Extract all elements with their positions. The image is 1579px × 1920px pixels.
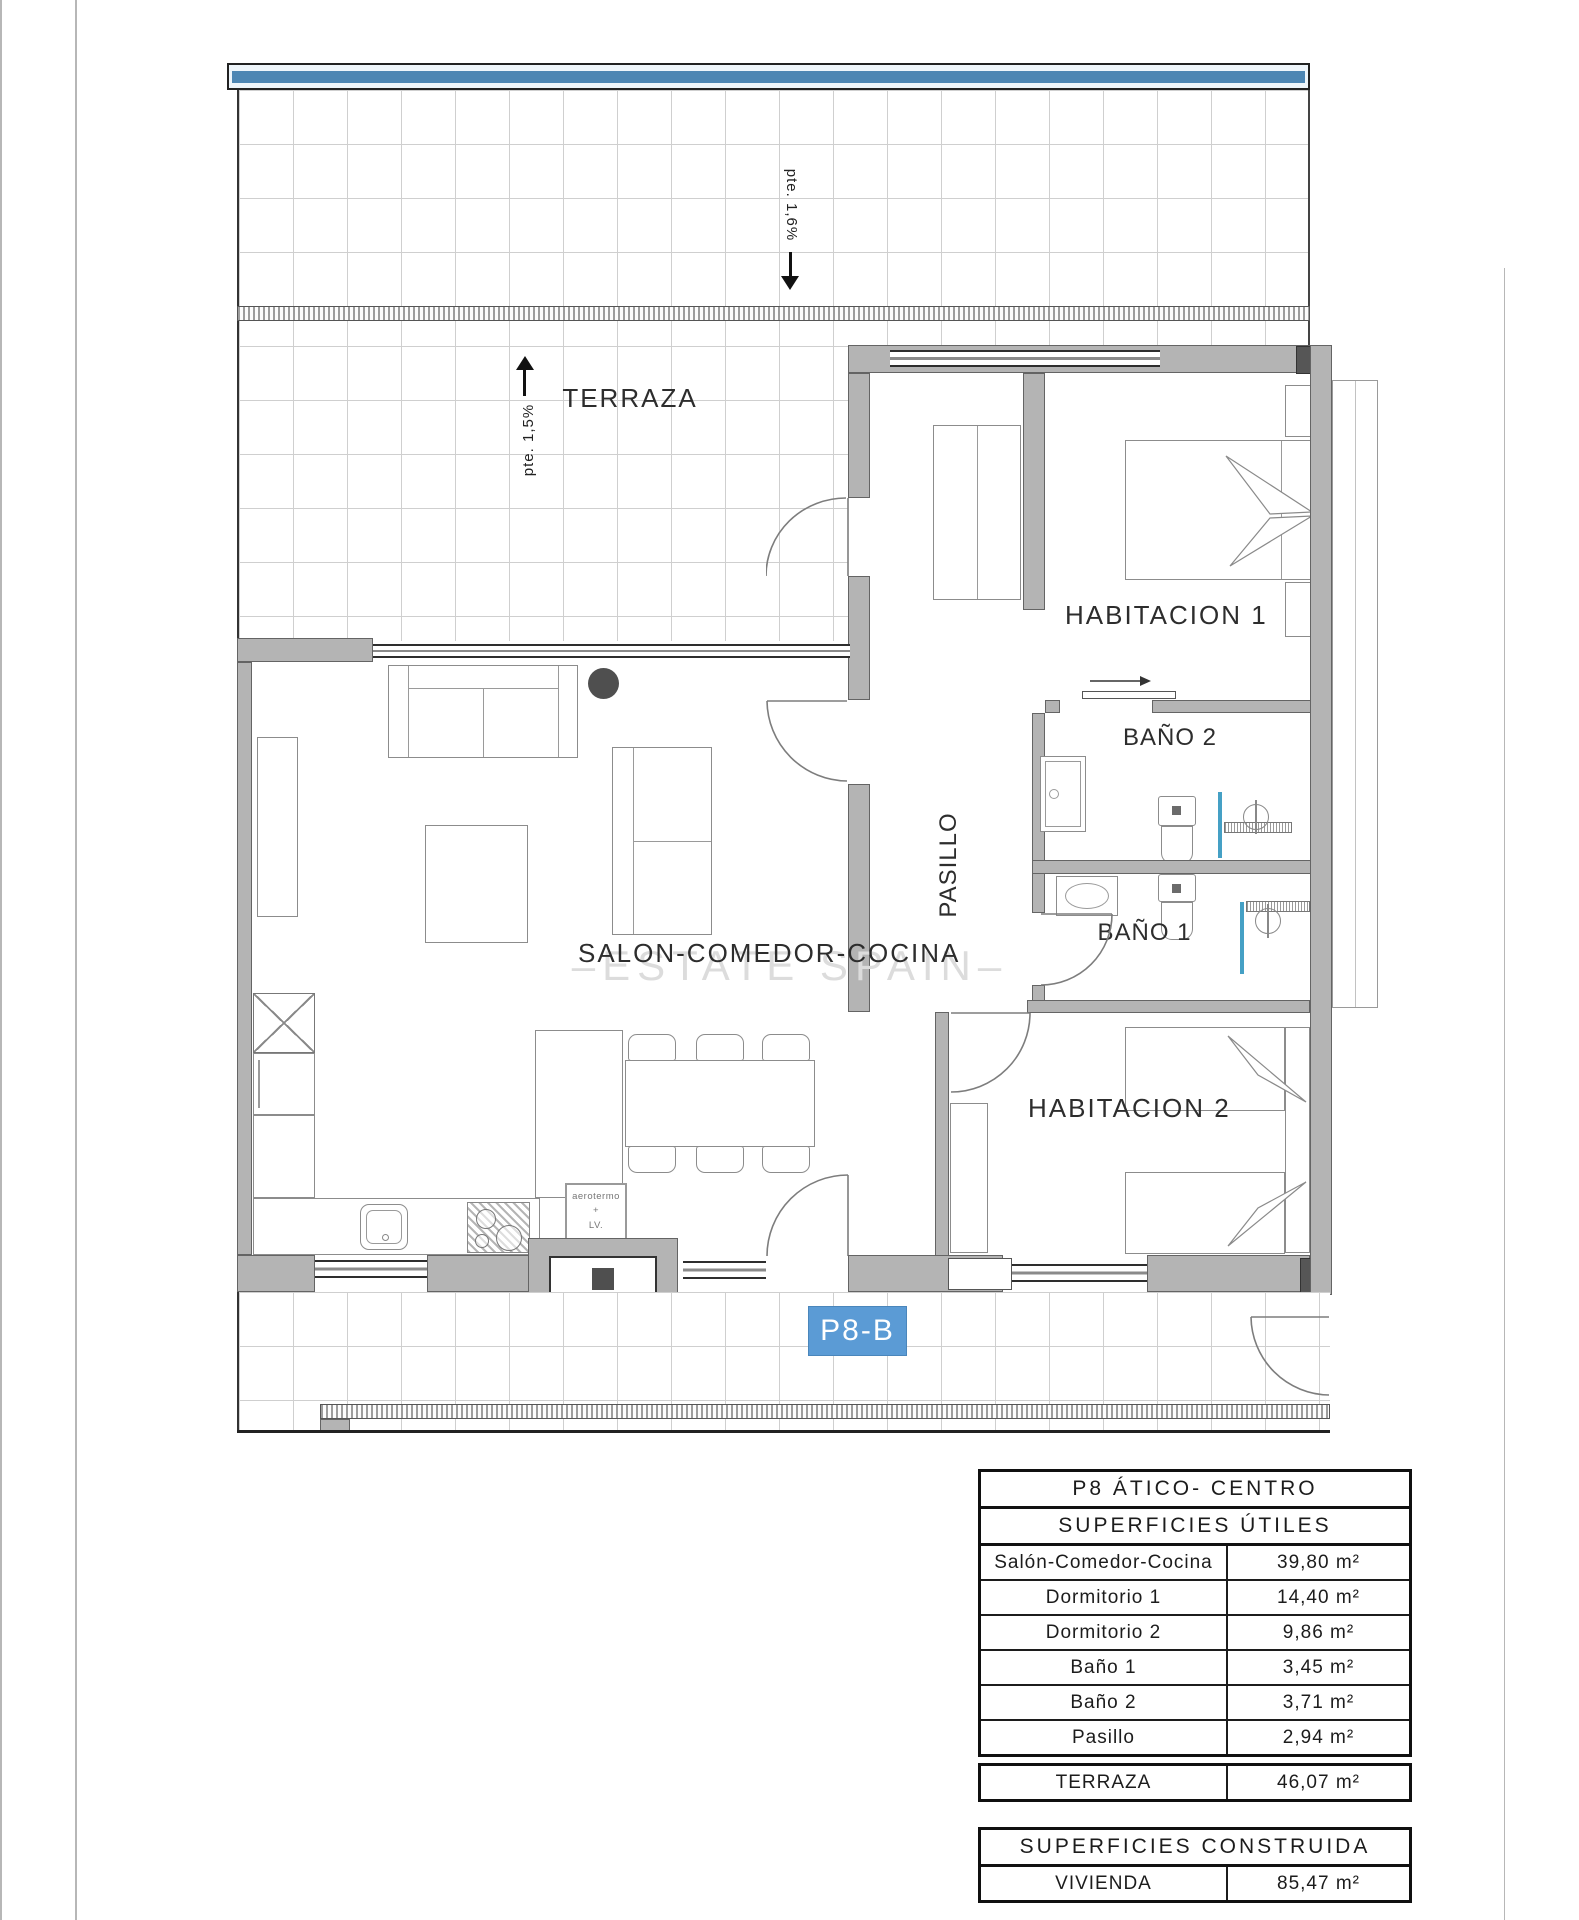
faucet-bano2-stem: [1255, 800, 1257, 834]
slope-annotation-top: pte. 1,6%: [782, 160, 800, 250]
table-title: SUPERFICIES CONSTRUIDA: [981, 1830, 1409, 1864]
aerotermo-unit: aerotermo + LV.: [565, 1183, 627, 1240]
terrace-drain-strip: [237, 306, 1310, 321]
bano2-shower-screen: [1218, 792, 1222, 858]
terraza-table: TERRAZA 46,07 m²: [978, 1763, 1412, 1802]
habitacion1-label: HABITACION 1: [1065, 600, 1255, 631]
page-edge-line: [0, 0, 2, 1920]
row-value: 3,71 m²: [1228, 1686, 1409, 1719]
east-gallery-strip: [1332, 380, 1378, 1008]
aerotermo-text-3: LV.: [589, 1219, 603, 1233]
plant-circle: [588, 668, 619, 699]
bano2-sliding-door-leaf: [1082, 691, 1176, 699]
south-window-2: [683, 1261, 766, 1279]
south-window-3: [1003, 1264, 1147, 1282]
table-row: Baño 1 3,45 m²: [981, 1649, 1409, 1684]
coffee-table: [425, 825, 528, 943]
habitacion2-door-arc: [950, 1012, 1032, 1094]
row-label: Pasillo: [981, 1721, 1228, 1754]
wall-habitacion2-top: [1027, 1000, 1310, 1013]
row-value: 9,86 m²: [1228, 1616, 1409, 1649]
bed2-pillow-1: [1218, 1030, 1308, 1106]
habitacion2-label: HABITACION 2: [1028, 1093, 1218, 1124]
table-row: Baño 2 3,71 m²: [981, 1684, 1409, 1719]
table-subtitle: SUPERFICIES ÚTILES: [981, 1506, 1409, 1543]
dining-chair: [696, 1146, 744, 1173]
kitchen-sink: [360, 1204, 408, 1250]
aerotermo-text-2: +: [593, 1204, 599, 1218]
slope-arrow-line-left: [523, 370, 526, 396]
terrace-bottom-rail: [320, 1404, 1330, 1419]
pasillo-label: PASILLO: [935, 805, 959, 925]
table-row: Dormitorio 1 14,40 m²: [981, 1579, 1409, 1614]
wardrobe-habitacion2: [950, 1103, 988, 1253]
vanity-bano1-counter: [1246, 901, 1310, 912]
wall-south-4: [1147, 1255, 1310, 1292]
cooktop: [467, 1202, 530, 1253]
row-value: 46,07 m²: [1228, 1766, 1409, 1799]
corridor-wardrobe: [933, 425, 1021, 600]
page-fold-line-right: [1504, 268, 1505, 1920]
row-value: 2,94 m²: [1228, 1721, 1409, 1754]
terraza-label: TERRAZA: [545, 383, 715, 414]
sliding-door-arrow-icon: [1088, 674, 1152, 688]
slope-arrow-up-icon: [516, 356, 534, 370]
slope-arrow-line-top: [789, 252, 792, 276]
kitchen-cabinet: [253, 1053, 315, 1115]
table-title: P8 ÁTICO- CENTRO: [981, 1472, 1409, 1506]
bed1-pillows: [1218, 450, 1314, 570]
dining-chair: [628, 1146, 676, 1173]
terrace-left-tiles: [237, 346, 848, 641]
dining-chair: [628, 1034, 676, 1061]
wall-bano2-top-right: [1152, 700, 1318, 713]
sideboard: [257, 737, 298, 917]
bano1-door-arc: [1040, 913, 1114, 987]
dining-chair: [696, 1034, 744, 1061]
row-label: Baño 2: [981, 1686, 1228, 1719]
sink-bano1: [1056, 876, 1118, 916]
wall-corridor-left-2: [848, 576, 870, 700]
wall-east: [1310, 345, 1332, 1295]
row-label: Dormitorio 2: [981, 1616, 1228, 1649]
row-value: 85,47 m²: [1228, 1867, 1409, 1900]
shower-bano2: [1040, 756, 1086, 832]
salon-door-arc: [766, 700, 848, 782]
table-row: Salón-Comedor-Cocina 39,80 m²: [981, 1543, 1409, 1579]
floorplan-page: { "plan": { "badge": "P8-B", "watermark"…: [0, 0, 1579, 1920]
toilet-bano1-button: [1172, 884, 1181, 893]
faucet-bano1-stem: [1267, 904, 1269, 938]
wall-corridor-left-1: [848, 373, 870, 498]
slope-annotation-left: pte. 1,5%: [520, 395, 538, 485]
entry-door-arc: [766, 496, 850, 578]
wall-salon-north-left: [237, 638, 373, 662]
row-value: 39,80 m²: [1228, 1546, 1409, 1579]
row-value: 3,45 m²: [1228, 1651, 1409, 1684]
unit-badge: P8-B: [808, 1306, 907, 1356]
kitchen-column-box: [253, 993, 315, 1053]
table-row: TERRAZA 46,07 m²: [981, 1766, 1409, 1799]
table-row: VIVIENDA 85,47 m²: [981, 1864, 1409, 1900]
kitchen-island: [535, 1030, 623, 1198]
wall-habitacion2-left: [935, 1012, 949, 1257]
aerotermo-text-1: aerotermo: [572, 1190, 620, 1204]
superficies-construida-table: SUPERFICIES CONSTRUIDA VIVIENDA 85,47 m²: [978, 1827, 1412, 1903]
salon-north-window: [373, 644, 850, 658]
row-label: VIVIENDA: [981, 1867, 1228, 1900]
habitacion1-window: [890, 350, 1160, 367]
bano2-label: BAÑO 2: [1115, 724, 1225, 752]
terrace-door-arc: [766, 1174, 850, 1257]
row-label: Baño 1: [981, 1651, 1228, 1684]
wall-bano2-top-left: [1045, 700, 1060, 713]
kitchen-counter-left: [253, 1115, 315, 1198]
page-fold-line-left: [75, 0, 77, 1920]
table-row: Dormitorio 2 9,86 m²: [981, 1614, 1409, 1649]
slope-arrow-down-icon: [781, 276, 799, 290]
sofa-main: [388, 665, 578, 758]
superficies-utiles-table: P8 ÁTICO- CENTRO SUPERFICIES ÚTILES Saló…: [978, 1469, 1412, 1757]
glass-balustrade-strip: [232, 71, 1305, 83]
dining-table: [625, 1060, 815, 1147]
habitacion2-wall-recess: [948, 1258, 1012, 1290]
toilet-bano2-button: [1172, 806, 1181, 815]
south-window-1: [315, 1260, 427, 1278]
wall-south-1: [237, 1255, 315, 1292]
table-row: Pasillo 2,94 m²: [981, 1719, 1409, 1754]
wall-south-2: [427, 1255, 538, 1292]
terrace-right-door-arc: [1250, 1316, 1330, 1396]
wall-habitacion1-left: [1023, 373, 1045, 610]
wall-west: [237, 662, 252, 1255]
wall-banos-divider: [1032, 860, 1318, 874]
dining-chair: [762, 1146, 810, 1173]
row-value: 14,40 m²: [1228, 1581, 1409, 1614]
row-label: Salón-Comedor-Cocina: [981, 1546, 1228, 1579]
salon-label: SALON-COMEDOR-COCINA: [578, 938, 933, 969]
sofa-side: [612, 747, 712, 935]
bed2-pillow-2: [1218, 1176, 1308, 1252]
plan-bottom-line: [237, 1430, 1330, 1433]
terrace-parapet: [227, 63, 1310, 90]
bano1-shower-screen: [1240, 902, 1244, 974]
toilet-bano2-bowl: [1161, 826, 1193, 864]
row-label: Dormitorio 1: [981, 1581, 1228, 1614]
dining-chair: [762, 1034, 810, 1061]
row-label: TERRAZA: [981, 1766, 1228, 1799]
